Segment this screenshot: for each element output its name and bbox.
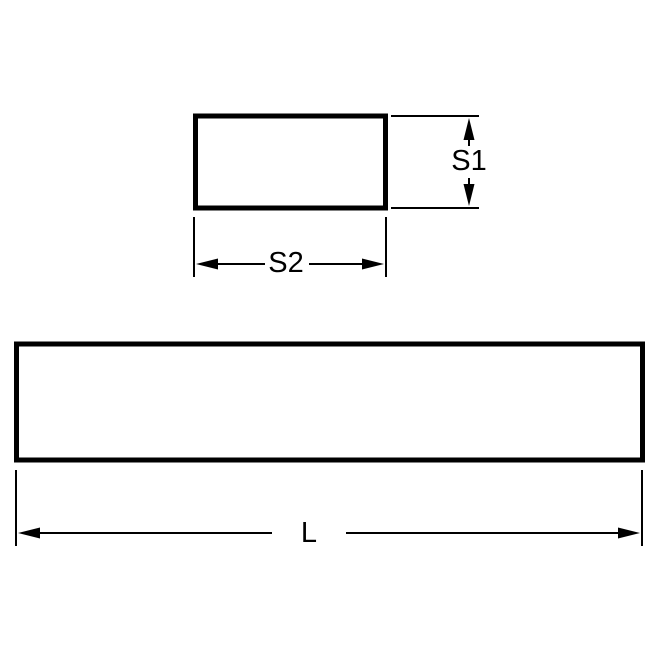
arrowhead-right-icon (618, 528, 640, 539)
s2-dimension-label: S2 (268, 247, 303, 279)
s2-dimension: S2 (194, 217, 386, 279)
dimension-diagram: S1 S2 L (0, 0, 670, 670)
cross-section-view: S1 S2 (194, 116, 487, 279)
arrowhead-up-icon (464, 118, 475, 140)
cross-section-rect (196, 116, 386, 208)
l-dimension: L (16, 470, 642, 549)
l-dimension-label: L (301, 517, 317, 549)
side-view-rect (17, 344, 643, 460)
arrowhead-left-icon (196, 259, 218, 270)
s1-dimension: S1 (391, 116, 487, 208)
arrowhead-left-icon (18, 528, 40, 539)
side-view: L (16, 344, 643, 549)
s1-dimension-label: S1 (451, 145, 486, 177)
arrowhead-right-icon (362, 259, 384, 270)
technical-drawing-canvas: S1 S2 L (0, 0, 670, 670)
arrowhead-down-icon (464, 184, 475, 206)
